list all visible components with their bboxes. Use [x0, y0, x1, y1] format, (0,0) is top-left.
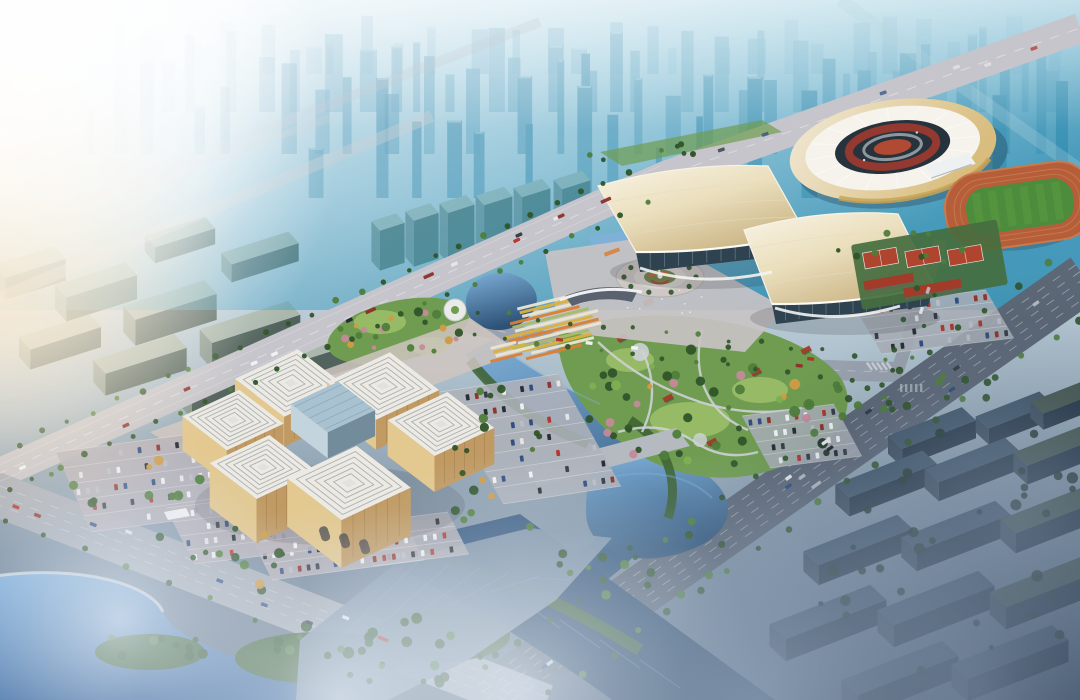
aerial-rendering-canvas: [0, 0, 1080, 700]
aerial-rendering: [0, 0, 1080, 700]
